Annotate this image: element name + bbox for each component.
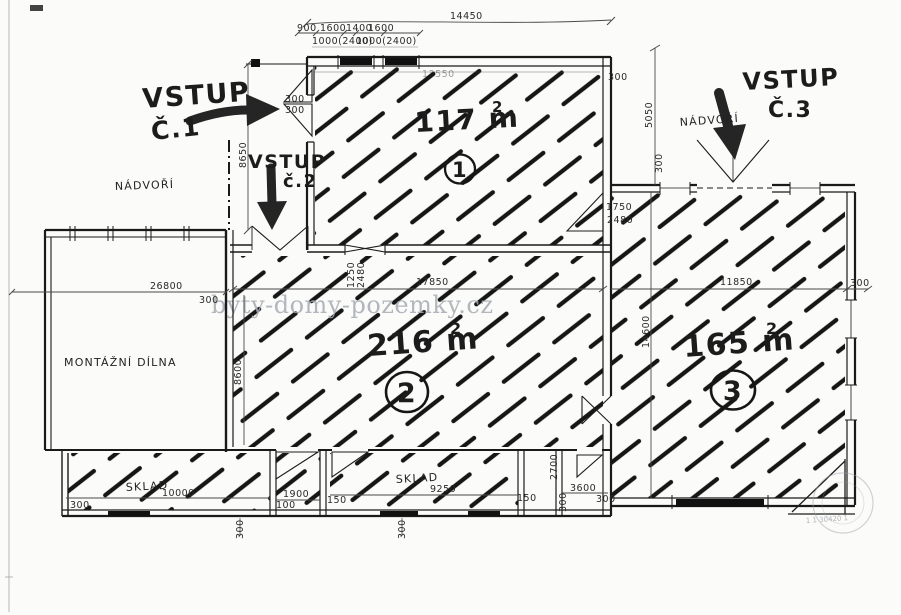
area-2-number: 2	[397, 378, 417, 409]
dim-right-h: 5050	[644, 102, 655, 128]
dim-300-strip: 300	[70, 500, 90, 511]
dim-300-rot1: 300	[654, 153, 665, 173]
dim-100: 100	[276, 500, 296, 511]
entrance-2-door	[252, 226, 308, 250]
dim-300-e1b: 300	[285, 105, 305, 116]
floor-plan-page: byty-domy-pozemky.cz	[0, 0, 901, 615]
dim-door-c: 1750	[606, 202, 632, 213]
dim-top-total: 14450	[450, 11, 483, 22]
area-1-number: 1	[452, 158, 468, 182]
courtyard-left-label: NÁDVOŘÍ	[115, 178, 175, 193]
dim-300-e: 300	[596, 494, 616, 505]
entrance-3-label: VSTUP	[742, 63, 840, 96]
dim-room-e-w: 3600	[570, 483, 596, 494]
area-3-number: 3	[723, 376, 743, 407]
dim-150-b: 150	[517, 493, 537, 504]
area-2-size-sup: 2	[450, 319, 463, 338]
watermark-text: byty-domy-pozemky.cz	[211, 291, 494, 319]
dim-300-rot3: 300	[235, 519, 246, 539]
entrance-3-arrow-icon	[713, 93, 746, 160]
area-3-size-sup: 2	[766, 319, 779, 338]
workshop-label: MONTÁŽNÍ DÍLNA	[64, 356, 177, 369]
dim-room-d-h: 2700	[549, 454, 560, 480]
dim-300-right: 300	[850, 278, 870, 289]
dim-150-a: 150	[327, 495, 347, 506]
dim-300-left: 300	[199, 295, 219, 306]
dim-left-width: 26800	[150, 281, 183, 292]
dim-area3-h: 14600	[641, 315, 652, 348]
dim-workshop-h: 8600	[233, 359, 244, 385]
door-room-e	[577, 455, 602, 477]
dim-300-rot2: 300	[558, 492, 569, 512]
dim-door-b: 2480	[356, 262, 367, 288]
entrance-1-number: Č.1	[149, 111, 202, 146]
dim-seg1: 900	[297, 23, 317, 34]
dim-sklad1-len: 10000	[162, 488, 195, 499]
dim-sklad2-len: 9250	[430, 484, 456, 495]
dim-door-b2: 2480	[607, 215, 633, 226]
dim-300-top: 300	[608, 72, 628, 83]
dim-courtyard-h: 8650	[238, 142, 249, 168]
dim-300-e1a: 300	[285, 94, 305, 105]
dim-seg2: 1600	[320, 23, 346, 34]
stamp-code: 1 1 30420 1	[806, 514, 849, 525]
entrance-3-number: Č.3	[768, 97, 812, 123]
area-1-size: 117 m	[414, 101, 520, 139]
entrance-2-label: VSTUP	[248, 151, 326, 173]
dim-area1-inner: 13550	[422, 69, 455, 80]
dim-area2-width: 17850	[416, 277, 449, 288]
dim-300-rot4: 300	[397, 519, 408, 539]
dim-win2: 1000(2400)	[356, 36, 417, 47]
area-1-size-sup: 2	[492, 98, 504, 116]
dim-area3-width: 11850	[720, 277, 753, 288]
dim-room-b-w: 1900	[283, 489, 309, 500]
storage-1-hatch	[68, 453, 270, 510]
floor-plan-svg: byty-domy-pozemky.cz	[0, 0, 901, 615]
entrance-2-number: č.2	[283, 171, 318, 192]
dim-seg4: 1600	[368, 23, 394, 34]
